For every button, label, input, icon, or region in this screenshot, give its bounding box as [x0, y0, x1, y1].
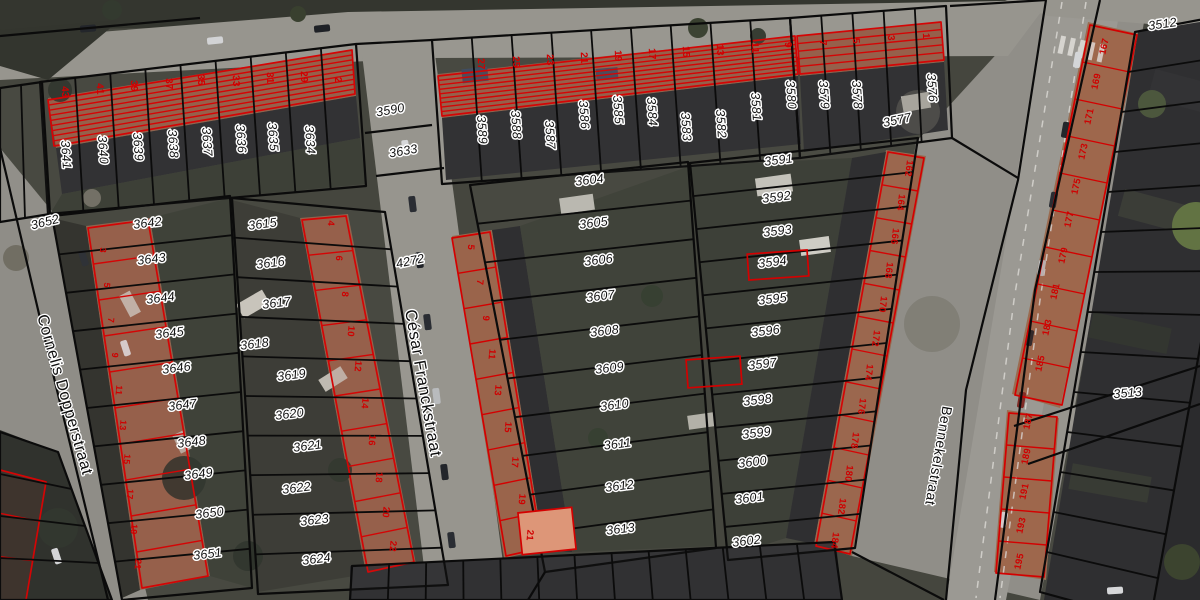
house-number-label: 180	[842, 464, 855, 482]
parcel-number-label: 3580	[783, 80, 799, 110]
house-number-label: 31	[264, 72, 275, 84]
house-number-label: 17	[125, 489, 136, 500]
parcel-number-label: 3576	[924, 73, 940, 103]
house-number-label: 12	[352, 360, 364, 372]
house-number-label: 35	[195, 74, 206, 86]
house-number-label: 33	[230, 75, 241, 87]
house-number-label: 25	[510, 56, 521, 68]
house-number-label: 13	[492, 384, 504, 396]
house-number-label: 20	[380, 506, 392, 518]
house-number-label: 22	[387, 540, 399, 552]
house-number-label: 7	[106, 317, 116, 323]
parcel-number-label: 3641	[58, 140, 74, 170]
house-number-label: 13	[714, 44, 725, 56]
house-number-label: 182	[835, 497, 848, 515]
house-number-label: 17	[646, 48, 657, 60]
house-number-label: 21	[578, 52, 589, 64]
house-number-label: 39	[128, 80, 139, 92]
house-number-label: 1	[920, 33, 931, 39]
house-number-label: 174	[862, 363, 875, 381]
house-number-label: 19	[129, 524, 140, 535]
parcel-number-label: 3637	[199, 127, 215, 157]
house-number-label: 184	[828, 531, 841, 549]
house-number-label: 19	[612, 50, 623, 62]
parcel-number-label: 3587	[542, 120, 558, 150]
house-number-label: 21	[133, 559, 144, 570]
house-number-label: 5	[102, 282, 112, 288]
house-number-label: 14	[358, 397, 370, 409]
house-number-label: 15	[122, 454, 133, 465]
house-number-label: 21	[523, 529, 535, 541]
parcel-number-label: 3586	[576, 100, 592, 130]
house-number-label: 37	[163, 78, 174, 90]
house-number-label: 3	[885, 35, 896, 41]
house-number-label: 178	[848, 431, 861, 449]
parcel-number-label: 3581	[748, 92, 764, 122]
parcel-number-label: 3636	[233, 124, 249, 154]
house-number-label: 10	[345, 325, 357, 337]
map-viewport[interactable]: 3641364036393638363736363635363435893588…	[0, 0, 1200, 600]
parcel-number-label: 3634	[302, 125, 318, 155]
parcel-number-label: 3579	[816, 80, 832, 110]
house-number-label: 9	[782, 42, 793, 48]
house-number-label: 2	[332, 77, 343, 83]
house-number-label: 41	[94, 83, 105, 95]
house-number-label: 43	[59, 86, 70, 98]
parcel-number-label: 3635	[265, 122, 281, 152]
house-number-label: 18	[373, 471, 385, 483]
house-number-label: 23	[544, 54, 555, 66]
parcel-number-label: 3583	[678, 112, 694, 142]
road-parcel-number-label: 3513	[1113, 385, 1143, 401]
parcel-number-label: 3640	[95, 135, 111, 165]
house-number-label: 11	[486, 349, 498, 361]
house-number-label: 3	[98, 247, 108, 253]
house-number-label: 6	[333, 255, 344, 261]
parcel-number-label: 3585	[610, 95, 626, 125]
house-number-label: 11	[749, 42, 760, 54]
parcel-number-label: 3582	[713, 109, 729, 139]
house-number-label: 9	[480, 315, 491, 321]
house-number-label: 29	[298, 71, 309, 83]
house-number-label: 166	[888, 227, 901, 245]
house-number-label: 11	[114, 385, 125, 396]
house-number-label: 17	[509, 456, 521, 468]
house-number-label: 7	[474, 279, 485, 285]
parcel-number-label: 3584	[644, 97, 660, 127]
house-number-label: 19	[516, 493, 528, 505]
house-number-label: 162	[902, 159, 915, 177]
parcel-block	[0, 82, 50, 222]
house-number-label: 168	[882, 261, 895, 279]
house-number-label: 170	[876, 295, 889, 313]
house-number-label: 172	[869, 329, 882, 347]
house-number-label: 9	[110, 352, 120, 358]
house-number-label: 176	[855, 397, 868, 415]
cadastral-aerial-map: 3641364036393638363736363635363435893588…	[0, 0, 1200, 600]
house-number-label: 7	[817, 40, 828, 46]
parcel-number-label: 3589	[474, 115, 490, 145]
parcel-number-label: 3638	[165, 129, 181, 159]
parcel-number-label: 3639	[130, 132, 146, 162]
house-number-label: 13	[118, 420, 129, 431]
house-number-label: 16	[366, 434, 378, 446]
house-number-label: 8	[339, 291, 350, 297]
house-number-label: 164	[894, 193, 907, 211]
parcel-number-label: 3588	[508, 110, 524, 140]
parcel-number-label: 3578	[849, 80, 865, 110]
house-number-label: 15	[501, 421, 513, 433]
house-number-label: 15	[680, 46, 691, 58]
house-number-label: 5	[850, 38, 861, 44]
house-number-label: 27	[475, 58, 486, 70]
